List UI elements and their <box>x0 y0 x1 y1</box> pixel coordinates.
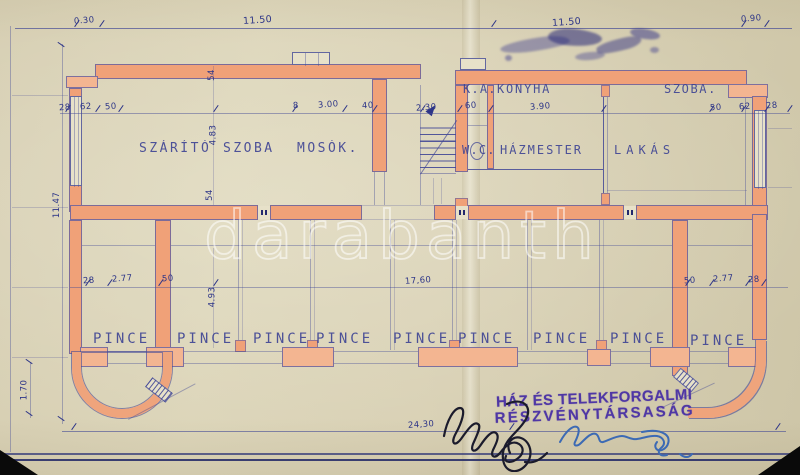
extension-line <box>768 187 792 188</box>
dim-label: 3.90 <box>530 101 551 112</box>
ink-smudge <box>505 55 512 61</box>
signature-black <box>444 408 523 462</box>
room-label-szoba-right: SZOBA. <box>664 82 717 96</box>
room-label-ka: K.A. <box>463 82 497 96</box>
dim-label: 50 <box>105 102 117 113</box>
dim-tick <box>213 105 219 112</box>
dim-label: 62 <box>739 102 751 113</box>
dim-tick <box>491 20 497 27</box>
dim-tick <box>57 416 64 422</box>
room-label-pince: PINCE <box>316 331 373 347</box>
chimney-block <box>292 52 330 65</box>
window-mullion <box>758 111 759 189</box>
signature-blue <box>560 427 669 456</box>
room-label-mosok: MOSÓK. <box>297 141 359 156</box>
dim-label: 8 <box>293 101 299 111</box>
extension-line <box>768 128 792 129</box>
dim-label-vertical: 54 <box>207 69 217 81</box>
wall-nub <box>601 85 610 97</box>
wall-szoba-lakas-1 <box>603 85 604 205</box>
watermark-overlay: darabanth <box>0 190 800 285</box>
room-label-lakas: LAKÁS <box>614 143 675 157</box>
room-label-pince: PINCE <box>93 331 150 347</box>
foundation-pier <box>650 347 690 367</box>
floor-plan-sheet: 0.30 11.50 11.50 0.90 11.47 1.70 <box>0 0 800 475</box>
dim-label: 0.90 <box>741 13 762 24</box>
room-label-pince: PINCE <box>393 331 450 347</box>
dim-tick <box>787 105 793 112</box>
room-label-pince: PINCE <box>533 331 590 347</box>
dim-label: 2.30 <box>416 102 437 113</box>
ink-smudge <box>575 51 606 62</box>
wall-top-left <box>95 64 421 79</box>
room-label-pince: PINCE <box>253 331 310 347</box>
extension-line <box>12 287 68 288</box>
signature-blue-flourish <box>680 454 692 457</box>
chimney-block <box>460 58 486 70</box>
foundation-pier <box>418 347 518 367</box>
signature-black-flourish <box>503 402 547 472</box>
wc-box-line <box>468 125 487 126</box>
room-label-pince: PINCE <box>177 331 234 347</box>
room-label-szoba-left: SZOBA <box>223 141 275 156</box>
wall-konyha-hazmester <box>468 169 603 170</box>
dim-tick <box>775 423 781 430</box>
dim-tick <box>25 359 32 365</box>
foundation-pier <box>282 347 334 367</box>
dim-line-upper-row <box>60 113 790 114</box>
extension-line <box>12 357 68 358</box>
window-mullion <box>78 97 79 187</box>
dim-label: 50 <box>710 103 722 114</box>
signatures-overlay <box>430 392 720 472</box>
window-right <box>754 110 766 188</box>
dim-tick <box>57 42 64 48</box>
room-label-wc: W.C. <box>462 143 496 157</box>
dim-label-vertical: 1.70 <box>19 380 29 401</box>
dim-label: 11.50 <box>243 14 273 27</box>
dim-label: 3.00 <box>318 99 339 110</box>
dim-tick <box>95 105 101 112</box>
dim-line-basement-row <box>70 287 788 288</box>
room-label-szarito: SZÁRÍTÓ <box>139 141 211 156</box>
dim-label: 0.30 <box>74 15 95 26</box>
dim-tick <box>99 20 105 27</box>
foundation-pier <box>587 349 611 366</box>
dim-tick <box>118 105 124 112</box>
room-label-pince: PINCE <box>610 331 667 347</box>
dim-line-top <box>15 28 792 29</box>
dim-label: 28 <box>766 101 778 112</box>
room-label-hazmester: HÁZMESTER <box>500 143 583 157</box>
room-label-konyha: KONYHA <box>497 82 551 96</box>
dim-tick <box>71 423 77 430</box>
wall-left-step <box>66 76 98 88</box>
dim-label: 60 <box>465 101 477 112</box>
chimney-division <box>305 53 306 66</box>
dim-label: 40 <box>362 101 374 112</box>
ink-smudge <box>650 47 659 53</box>
room-label-pince: PINCE <box>458 331 515 347</box>
chimney-division <box>318 53 319 66</box>
dim-tick <box>25 411 32 417</box>
window-mullion <box>74 97 75 187</box>
window-mullion <box>762 111 763 189</box>
watermark-text: darabanth <box>204 197 600 274</box>
dim-line-170 <box>30 362 31 418</box>
dim-label-vertical: 4.93 <box>207 287 217 308</box>
wall-szoba-lakas-2 <box>607 85 608 205</box>
dim-label: 11.50 <box>552 16 582 29</box>
extension-line <box>12 95 68 96</box>
dim-label: 62 <box>80 102 92 113</box>
wall-stairhall-right <box>455 85 468 172</box>
dim-label: 28 <box>59 103 71 114</box>
wall-mosok-stairhall <box>372 79 387 172</box>
dim-tick <box>764 20 770 27</box>
dim-tick <box>342 105 348 112</box>
